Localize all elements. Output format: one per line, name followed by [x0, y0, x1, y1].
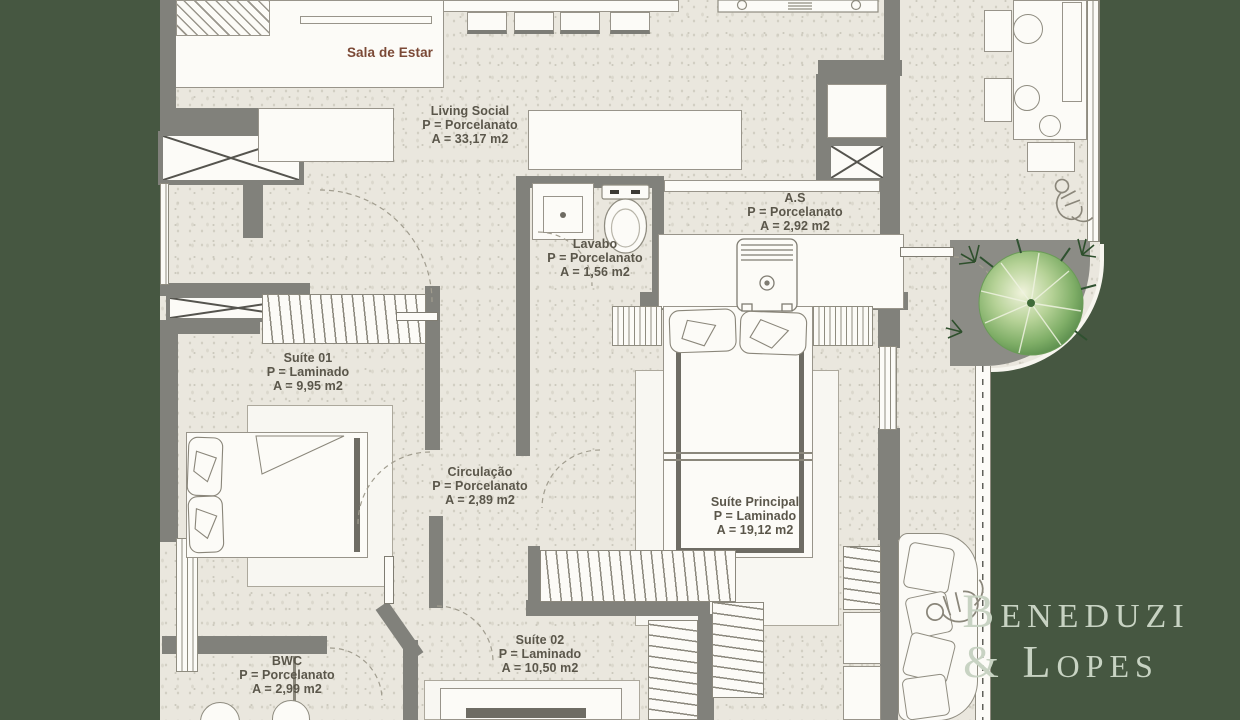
balcony-cabinet-hatch [843, 546, 881, 610]
room-label-lavabo: Lavabo P = Porcelanato A = 1,56 m2 [495, 238, 695, 279]
s1-bed-rail [354, 438, 360, 552]
balcony-cabinet-1 [843, 612, 881, 664]
kitchen-stool-2 [514, 12, 554, 34]
kitchen-stool-1 [467, 12, 507, 34]
closet-left-lower [648, 620, 698, 720]
room-area: A = 33,17 m2 [370, 133, 570, 147]
room-flooring: P = Laminado [208, 366, 408, 380]
room-name: Sala de Estar [290, 46, 490, 60]
balcony-sink-1 [1013, 14, 1043, 44]
x-cross-icon [831, 146, 883, 178]
sala-sideboard [176, 0, 270, 36]
balcony-cabinet-2 [843, 666, 881, 720]
lounge-cushion-1 [902, 541, 955, 594]
wall-circulacao-left-lower [429, 516, 443, 608]
bwc-door-leaf [384, 556, 394, 604]
kitchen-stool-3 [560, 12, 600, 34]
kitchen-stool-4 [610, 12, 650, 34]
room-name: Living Social [370, 105, 570, 119]
sp-bed-foldline-2 [664, 459, 812, 461]
room-name: A.S [695, 192, 895, 206]
s2-headboard [466, 708, 586, 718]
brand-name-line1: Beneduzi [950, 588, 1202, 636]
room-name: Suíte 01 [208, 352, 408, 366]
lounge-cushion-4 [901, 673, 950, 720]
balcony-rail-top-right [1087, 0, 1100, 242]
room-label-circulacao: Circulação P = Porcelanato A = 2,89 m2 [380, 466, 580, 507]
window-suite1-left [176, 538, 198, 672]
sp-bed-foldline-1 [664, 452, 812, 454]
room-flooring: P = Laminado [655, 510, 855, 524]
room-area: A = 9,95 m2 [208, 380, 408, 394]
brand-name-line2: & Lopes [950, 639, 1172, 685]
wall-circulacao-left-upper [425, 286, 440, 450]
room-flooring: P = Porcelanato [695, 206, 895, 220]
floorplan-canvas: Sala de Estar Living Social P = Porcelan… [0, 0, 1240, 720]
room-area: A = 19,12 m2 [655, 524, 855, 538]
wall-suite1-outer [160, 330, 178, 542]
balcony-table [1027, 142, 1075, 172]
room-name: BWC [187, 655, 387, 669]
room-label-suite-01: Suíte 01 P = Laminado A = 9,95 m2 [208, 352, 408, 393]
balcony-stool-1 [984, 10, 1012, 52]
s1-door-leaf [396, 312, 438, 321]
closet-right [712, 602, 764, 698]
room-flooring: P = Porcelanato [370, 119, 570, 133]
s1-bed-frame [186, 432, 368, 558]
room-label-suite-principal: Suíte Principal P = Laminado A = 19,12 m… [655, 496, 855, 537]
closet-top [540, 550, 736, 602]
room-area: A = 2,99 m2 [187, 683, 387, 697]
as-shelf [664, 180, 880, 192]
balcony-counter-inner [1062, 2, 1082, 102]
room-area: A = 2,89 m2 [380, 494, 580, 508]
wall-closet-left-lower [528, 546, 540, 604]
plan-edge-left [160, 183, 169, 285]
room-name: Suíte Principal [655, 496, 855, 510]
balcony-sink-2 [1014, 85, 1040, 111]
room-area: A = 1,56 m2 [495, 266, 695, 280]
room-area: A = 10,50 m2 [440, 662, 640, 676]
wall-sp-right-2 [878, 428, 900, 540]
room-name: Suíte 02 [440, 634, 640, 648]
sp-nightstand-left [612, 306, 662, 346]
room-flooring: P = Laminado [440, 648, 640, 662]
balcony-stool-2 [984, 78, 1012, 122]
lounge-cushion-2 [904, 590, 954, 640]
window-suite-principal-right [879, 346, 897, 430]
sp-panel-right [813, 306, 873, 346]
kitchen-counter [443, 0, 679, 12]
sala-console [300, 16, 432, 24]
room-name: Lavabo [495, 238, 695, 252]
room-flooring: P = Porcelanato [380, 480, 580, 494]
brand-logo: Beneduzi & Lopes [950, 588, 1202, 685]
shaft-xbox-top-right [827, 142, 887, 182]
room-label-sala-de-estar: Sala de Estar [290, 46, 490, 60]
room-flooring: P = Porcelanato [495, 252, 695, 266]
lavabo-basin [543, 196, 583, 233]
room-flooring: P = Porcelanato [187, 669, 387, 683]
room-label-as: A.S P = Porcelanato A = 2,92 m2 [695, 192, 895, 233]
shaft-box-top-right [827, 84, 887, 138]
wall-closet-left-upper [516, 292, 530, 456]
room-label-living-social: Living Social P = Porcelanato A = 33,17 … [370, 105, 570, 146]
balcony-round-stool [1039, 115, 1061, 137]
room-name: Circulação [380, 466, 580, 480]
room-label-suite-02: Suíte 02 P = Laminado A = 10,50 m2 [440, 634, 640, 675]
wall-closet-bottom [526, 600, 710, 616]
wall-right-lower [880, 538, 898, 720]
terrace-slab [950, 240, 1090, 366]
terrace-door-leaf [900, 247, 954, 257]
room-area: A = 2,92 m2 [695, 220, 895, 234]
wall-right-outer-top [884, 0, 900, 62]
room-label-bwc: BWC P = Porcelanato A = 2,99 m2 [187, 655, 387, 696]
